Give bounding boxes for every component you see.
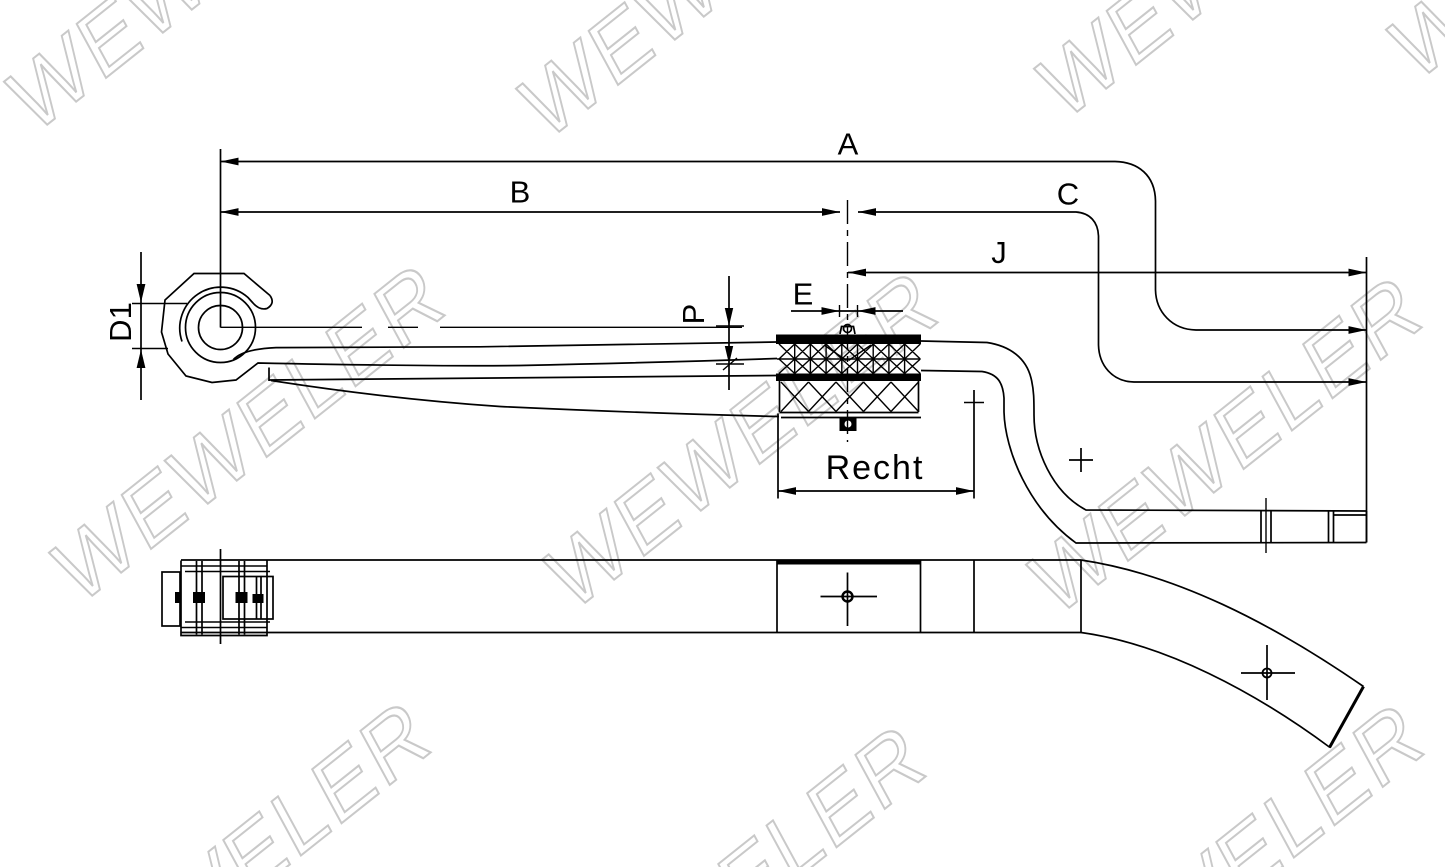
svg-text:B: B: [510, 175, 531, 210]
svg-text:A: A: [838, 127, 859, 162]
svg-text:J: J: [991, 235, 1007, 270]
svg-text:E: E: [793, 277, 814, 312]
svg-text:P: P: [676, 304, 711, 325]
svg-text:C: C: [1057, 177, 1079, 212]
svg-text:Recht: Recht: [826, 449, 925, 487]
svg-text:D1: D1: [103, 302, 138, 342]
